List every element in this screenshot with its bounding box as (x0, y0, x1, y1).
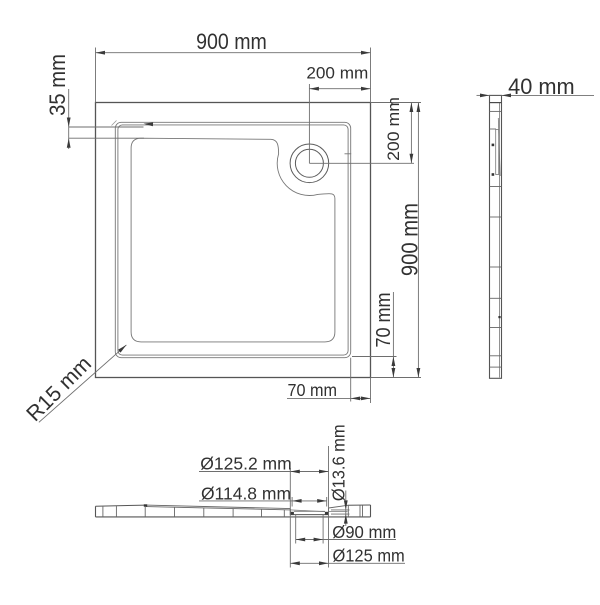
svg-text:70 mm: 70 mm (373, 292, 395, 347)
svg-text:70 mm: 70 mm (287, 380, 336, 400)
svg-text:200 mm: 200 mm (306, 64, 368, 83)
svg-text:Ø125.2 mm: Ø125.2 mm (200, 453, 291, 473)
svg-text:40 mm: 40 mm (508, 74, 575, 99)
svg-text:900 mm: 900 mm (396, 203, 423, 276)
svg-text:Ø13.6 mm: Ø13.6 mm (329, 424, 349, 501)
svg-text:900 mm: 900 mm (196, 30, 267, 54)
svg-text:Ø125 mm: Ø125 mm (332, 545, 404, 566)
svg-text:200 mm: 200 mm (383, 97, 403, 161)
svg-text:Ø114.8 mm: Ø114.8 mm (201, 483, 291, 503)
svg-text:R15 mm: R15 mm (22, 352, 96, 426)
svg-text:Ø90 mm: Ø90 mm (332, 521, 396, 542)
svg-text:35 mm: 35 mm (45, 54, 70, 116)
